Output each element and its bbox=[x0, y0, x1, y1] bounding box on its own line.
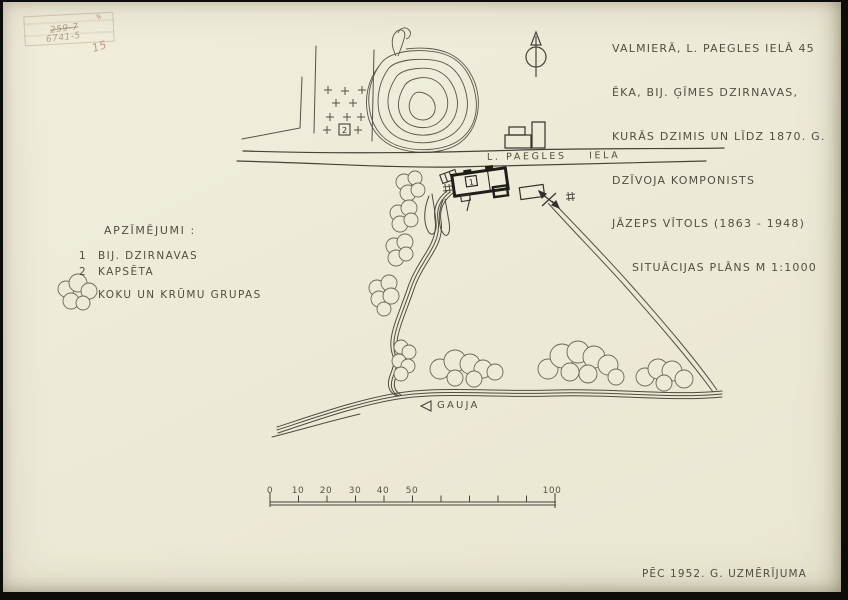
street-name-label: L. PAEGLES IELA bbox=[487, 149, 621, 165]
scale-label: 50 bbox=[406, 486, 418, 496]
river-lines bbox=[272, 389, 722, 437]
boundary-lines bbox=[242, 46, 374, 141]
north-arrow-icon bbox=[526, 32, 546, 77]
tree-contour-group bbox=[366, 28, 478, 153]
title-line: SITUĀCIJAS PLĀNS M 1:1000 bbox=[612, 261, 826, 276]
legend-heading: APZĪMĒJUMI : bbox=[104, 224, 196, 239]
hash-symbol-east bbox=[566, 192, 575, 201]
hash-symbol-west bbox=[443, 184, 452, 193]
title-line: ĒKA, BIJ. ĢĪMES DZIRNAVAS, bbox=[612, 86, 826, 101]
mill-building: 1 bbox=[451, 163, 509, 202]
scale-label: 40 bbox=[377, 486, 389, 496]
legend-item-label: BIJ. DZIRNAVAS bbox=[98, 249, 198, 264]
survey-note: PĒC 1952. G. UZMĒRĪJUMA bbox=[642, 567, 807, 582]
title-line: VALMIERĀ, L. PAEGLES IELĀ 45 bbox=[612, 42, 826, 57]
river-name-label: GAUJA bbox=[437, 399, 480, 414]
title-line: KURĀS DZIMIS UN LĪDZ 1870. G. bbox=[612, 130, 826, 145]
legend-item-label: KAPSĒTA bbox=[98, 265, 154, 280]
legend-cloud-item-label: KOKU UN KRŪMU GRUPAS bbox=[98, 288, 262, 303]
legend-item-key: 2 bbox=[79, 265, 93, 280]
scale-label: 30 bbox=[349, 486, 361, 496]
title-line: JĀZEPS VĪTOLS (1863 - 1948) bbox=[612, 217, 826, 232]
title-line: DZĪVOJA KOMPONISTS bbox=[612, 174, 826, 189]
crossing-marker bbox=[539, 191, 559, 208]
flag-marker bbox=[461, 194, 471, 211]
scale-label: 20 bbox=[320, 486, 332, 496]
legend-item-key: 1 bbox=[79, 249, 93, 264]
scale-label: 0 bbox=[267, 486, 273, 496]
scale-label: 10 bbox=[292, 486, 304, 496]
cemetery-area: 2 bbox=[323, 86, 366, 135]
title-block: VALMIERĀ, L. PAEGLES IELĀ 45 ĒKA, BIJ. Ģ… bbox=[612, 13, 826, 305]
scanned-document-frame: 2 1 bbox=[0, 0, 848, 600]
cemetery-number-label: 2 bbox=[342, 126, 347, 135]
scale-label: 100 bbox=[543, 486, 562, 496]
river-direction-icon bbox=[421, 401, 431, 411]
outbuildings-north bbox=[505, 122, 545, 148]
